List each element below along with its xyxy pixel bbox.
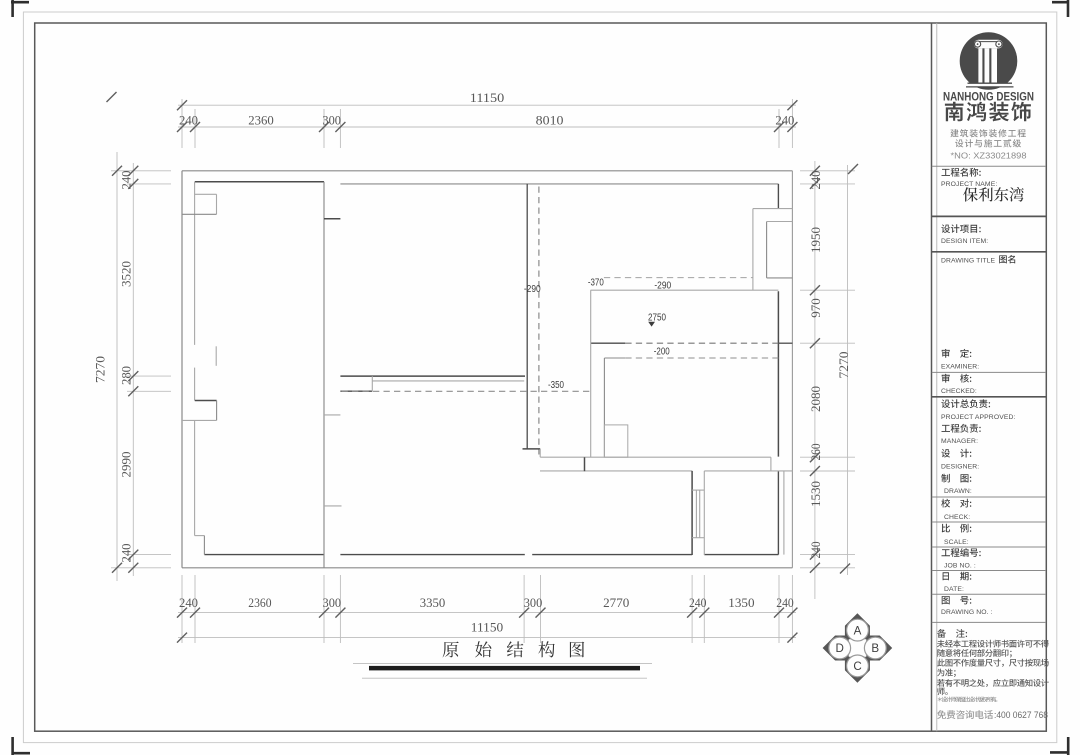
svg-text:240: 240 (179, 596, 198, 610)
svg-text:3520: 3520 (120, 261, 134, 287)
svg-text:2770: 2770 (603, 596, 629, 610)
svg-text:240: 240 (689, 596, 707, 610)
svg-text:240: 240 (775, 114, 794, 128)
svg-text:CHECK:: CHECK: (944, 514, 970, 521)
svg-text:300: 300 (524, 596, 543, 610)
svg-text:240: 240 (809, 542, 823, 559)
svg-text:300: 300 (322, 114, 341, 128)
svg-text:-290: -290 (524, 284, 541, 295)
svg-text:1530: 1530 (809, 481, 823, 507)
svg-text:NANHONG DESIGN: NANHONG DESIGN (943, 91, 1034, 103)
svg-text:DESIGNER:: DESIGNER: (941, 464, 979, 471)
svg-text:11150: 11150 (470, 91, 505, 105)
svg-text:-370: -370 (588, 277, 604, 288)
svg-text:240: 240 (120, 544, 134, 563)
svg-text:EXAMINER:: EXAMINER: (941, 363, 979, 370)
svg-text:280: 280 (120, 366, 134, 385)
svg-text:D: D (836, 642, 844, 655)
svg-text:2080: 2080 (809, 386, 823, 412)
svg-text:11150: 11150 (471, 621, 503, 635)
svg-text:JOB NO. :: JOB NO. : (944, 562, 976, 569)
svg-text:DRAWN:: DRAWN: (944, 488, 972, 495)
svg-text:1950: 1950 (809, 227, 823, 253)
svg-text:8010: 8010 (536, 114, 564, 128)
svg-text:240: 240 (809, 171, 823, 190)
svg-text:1350: 1350 (728, 596, 754, 610)
svg-text:-350: -350 (548, 380, 564, 391)
svg-text:MANAGER:: MANAGER: (941, 438, 978, 445)
svg-text:300: 300 (323, 596, 342, 610)
svg-text:240: 240 (120, 171, 134, 190)
svg-text:SCALE:: SCALE: (944, 539, 969, 546)
svg-text:-290: -290 (654, 281, 671, 292)
svg-text:970: 970 (809, 298, 823, 318)
svg-text:*NO: XZ33021898: *NO: XZ33021898 (951, 151, 1027, 161)
svg-text:PROJECT APPROVED:: PROJECT APPROVED: (941, 414, 1015, 421)
svg-text::400 0627 768: :400 0627 768 (994, 710, 1048, 721)
svg-text:240: 240 (776, 596, 794, 610)
svg-text:DATE:: DATE: (944, 586, 964, 593)
svg-text:PROJECT NAME:: PROJECT NAME: (941, 181, 997, 188)
svg-text:3350: 3350 (420, 596, 446, 610)
svg-text:C: C (853, 660, 861, 673)
svg-text:260: 260 (809, 444, 823, 461)
svg-text:CHECKED:: CHECKED: (941, 388, 977, 395)
svg-text:240: 240 (179, 114, 198, 128)
svg-text:DRAWING NO. :: DRAWING NO. : (941, 609, 993, 616)
svg-text:7270: 7270 (837, 352, 851, 379)
svg-text:A: A (854, 624, 862, 637)
svg-text:-200: -200 (654, 346, 670, 357)
svg-text:2360: 2360 (248, 596, 271, 610)
svg-text:B: B (871, 642, 879, 655)
svg-text:DESIGN ITEM:: DESIGN ITEM: (941, 238, 988, 245)
svg-text:2360: 2360 (248, 114, 274, 128)
svg-text:DRAWING TITLE: DRAWING TITLE (941, 257, 996, 264)
svg-text:7270: 7270 (94, 356, 108, 383)
svg-text:2990: 2990 (120, 452, 134, 478)
